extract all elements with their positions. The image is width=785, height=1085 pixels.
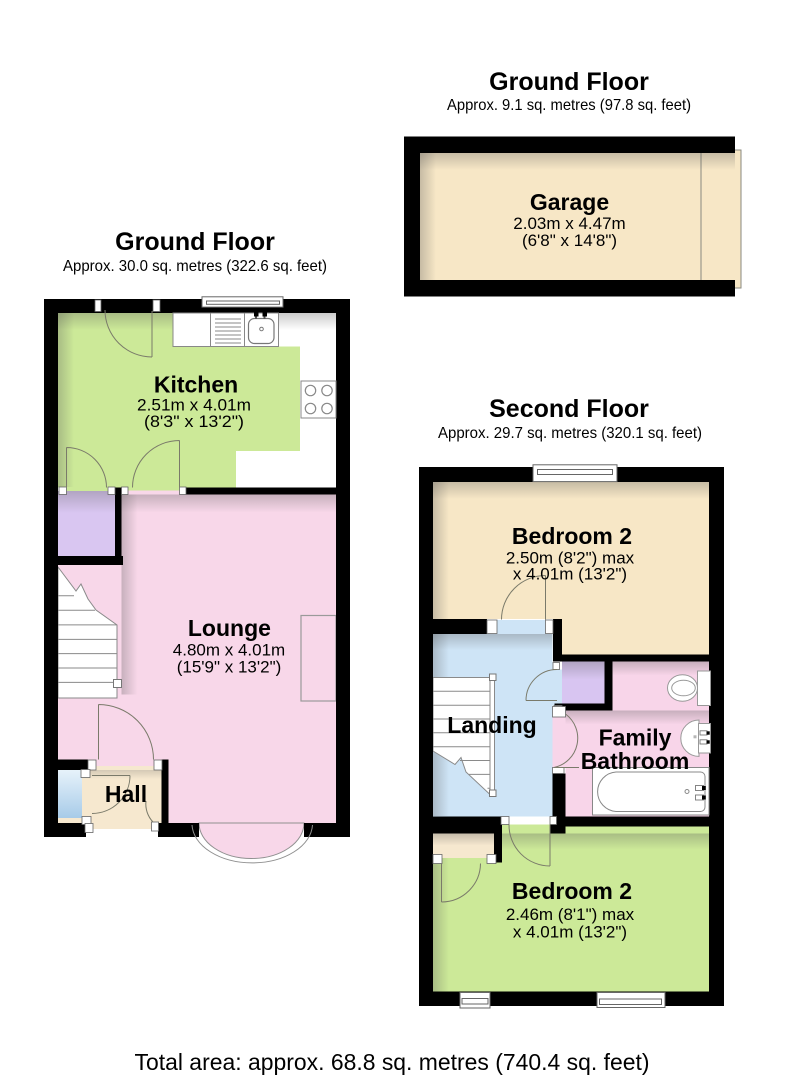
svg-text:Ground Floor: Ground Floor [489,68,649,96]
svg-text:Approx. 30.0 sq. metres (322.6: Approx. 30.0 sq. metres (322.6 sq. feet) [63,258,327,275]
svg-text:Bedroom 2: Bedroom 2 [512,523,632,549]
svg-text:Kitchen: Kitchen [154,372,238,398]
svg-text:Garage: Garage [530,189,609,215]
svg-text:(15'9" x 13'2"): (15'9" x 13'2") [177,658,282,677]
svg-text:x 4.01m (13'2"): x 4.01m (13'2") [513,923,627,942]
svg-text:Total area: approx. 68.8 sq. m: Total area: approx. 68.8 sq. metres (740… [135,1049,650,1075]
svg-text:Family: Family [599,725,672,751]
svg-text:(6'8" x 14'8"): (6'8" x 14'8") [522,231,617,250]
svg-text:Hall: Hall [105,781,147,807]
svg-text:(8'3" x 13'2"): (8'3" x 13'2") [144,412,244,431]
svg-text:Lounge: Lounge [188,615,271,641]
svg-text:Bathroom: Bathroom [581,748,690,774]
svg-text:Second Floor: Second Floor [489,395,649,423]
svg-text:Approx. 9.1 sq. metres (97.8 s: Approx. 9.1 sq. metres (97.8 sq. feet) [447,97,691,114]
svg-text:Landing: Landing [447,712,536,738]
svg-text:Ground Floor: Ground Floor [115,228,275,256]
svg-text:2.46m (8'1") max: 2.46m (8'1") max [506,905,635,924]
svg-text:Bedroom 2: Bedroom 2 [512,878,632,904]
svg-text:Approx. 29.7 sq. metres (320.1: Approx. 29.7 sq. metres (320.1 sq. feet) [438,425,702,442]
svg-text:x 4.01m (13'2"): x 4.01m (13'2") [513,565,627,584]
